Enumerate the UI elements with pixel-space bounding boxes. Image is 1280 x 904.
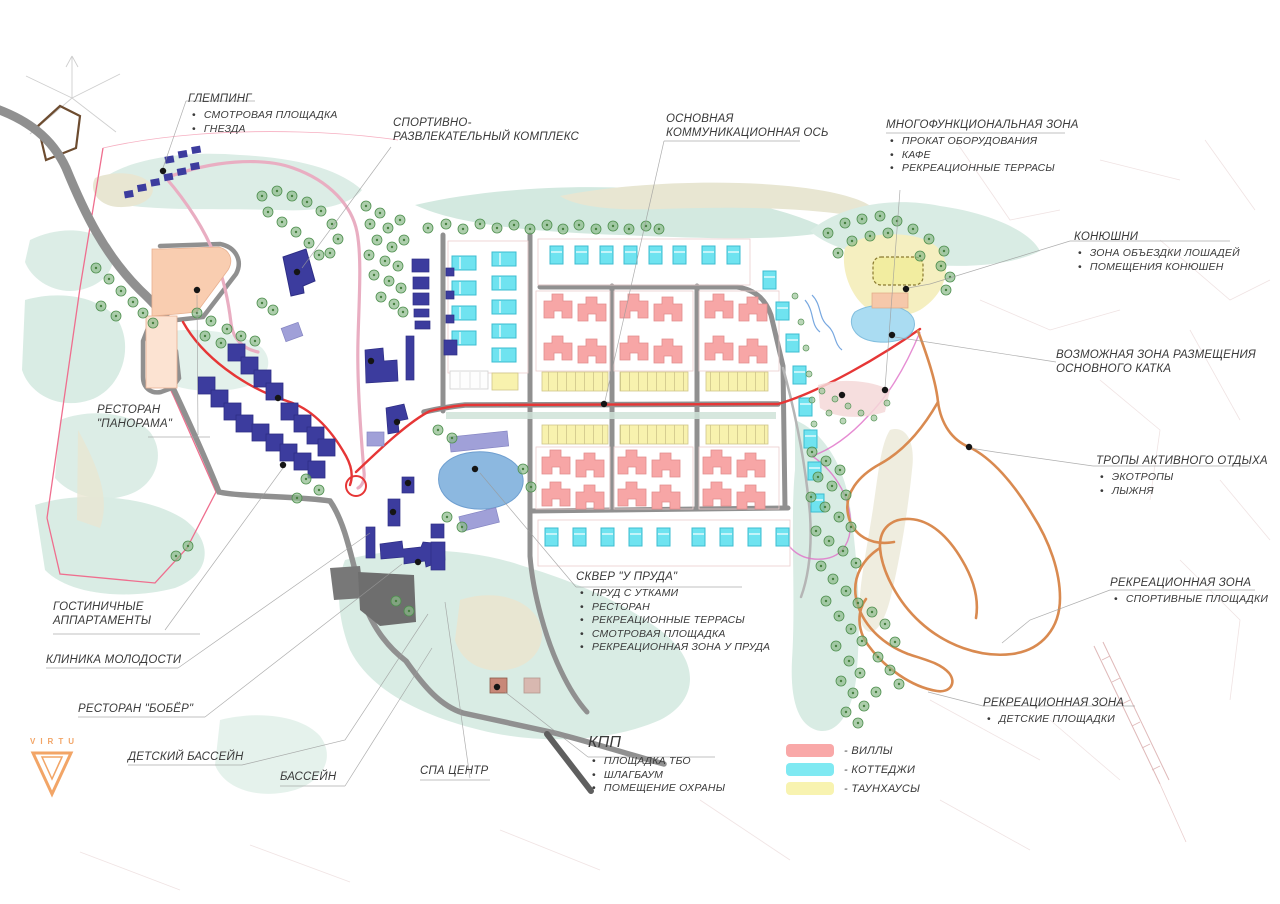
logo-mark-icon bbox=[29, 748, 75, 798]
legend-row-townhouses: - ТАУНХАУСЫ bbox=[786, 779, 920, 798]
stable-building bbox=[872, 293, 908, 308]
horse-arena bbox=[873, 257, 923, 285]
callout-sports-complex: СПОРТИВНО-РАЗВЛЕКАТЕЛЬНЫЙ КОМПЛЕКС bbox=[393, 116, 588, 147]
callout-item: РЕКРЕАЦИОННЫЕ ТЕРРАСЫ bbox=[576, 614, 770, 628]
legend-row-cottages: - КОТТЕДЖИ bbox=[786, 760, 920, 779]
callout-item: СМОТРОВАЯ ПЛОЩАДКА bbox=[188, 109, 338, 123]
callout-item: СМОТРОВАЯ ПЛОЩАДКА bbox=[576, 628, 770, 642]
callout-item: РЕСТОРАН bbox=[576, 601, 770, 615]
legend-swatch-cottages bbox=[786, 763, 836, 777]
callout-item: СПОРТИВНЫЕ ПЛОЩАДКИ bbox=[1110, 593, 1268, 607]
callout-item: ПОМЕЩЕНИЕ ОХРАНЫ bbox=[588, 782, 725, 796]
callout-trails: ТРОПЫ АКТИВНОГО ОТДЫХА ЭКОТРОПЫ ЛЫЖНЯ bbox=[1096, 454, 1268, 498]
callout-title: ГОСТИНИЧНЫЕ АППАРТАМЕНТЫ bbox=[53, 600, 203, 628]
callout-title: БАССЕЙН bbox=[280, 770, 336, 784]
legend: - ВИЛЛЫ - КОТТЕДЖИ - ТАУНХАУСЫ bbox=[786, 741, 920, 798]
callout-title: КПП bbox=[588, 734, 725, 752]
legend-row-villas: - ВИЛЛЫ bbox=[786, 741, 920, 760]
callout-stables: КОНЮШНИ ЗОНА ОБЪЕЗДКИ ЛОШАДЕЙ ПОМЕЩЕНИЯ … bbox=[1074, 230, 1240, 274]
callout-recreation-sport: РЕКРЕАЦИОННАЯ ЗОНА СПОРТИВНЫЕ ПЛОЩАДКИ bbox=[1110, 576, 1268, 607]
legend-label: - КОТТЕДЖИ bbox=[844, 764, 915, 776]
axis-green-median bbox=[446, 412, 776, 419]
callout-item: ДЕТСКИЕ ПЛОЩАДКИ bbox=[983, 713, 1124, 727]
callout-apartments: ГОСТИНИЧНЫЕ АППАРТАМЕНТЫ bbox=[53, 600, 203, 631]
callout-beaver: РЕСТОРАН "БОБЁР" bbox=[78, 702, 193, 719]
callout-title: СПА ЦЕНТР bbox=[420, 764, 488, 778]
callout-title: ВОЗМОЖНАЯ ЗОНА РАЗМЕЩЕНИЯ ОСНОВНОГО КАТК… bbox=[1056, 348, 1276, 376]
callout-title: КОНЮШНИ bbox=[1074, 230, 1240, 244]
callout-panorama: РЕСТОРАН "ПАНОРАМА" bbox=[97, 403, 217, 434]
duck-pond bbox=[439, 452, 523, 509]
callout-title: МНОГОФУНКЦИОНАЛЬНАЯ ЗОНА bbox=[886, 118, 1079, 132]
legend-label: - ТАУНХАУСЫ bbox=[844, 783, 920, 795]
callout-item: ГНЕЗДА bbox=[188, 123, 338, 137]
callout-title: СПОРТИВНО-РАЗВЛЕКАТЕЛЬНЫЙ КОМПЛЕКС bbox=[393, 116, 588, 144]
brand-name: VIRTU bbox=[26, 737, 78, 746]
compass-icon bbox=[26, 56, 120, 134]
callout-title: ДЕТСКИЙ БАССЕЙН bbox=[128, 750, 243, 764]
brand-logo: VIRTU bbox=[26, 737, 78, 803]
callout-item: РЕКРЕАЦИОННАЯ ЗОНА У ПРУДА bbox=[576, 641, 770, 655]
callout-title: РЕКРЕАЦИОННАЯ ЗОНА bbox=[983, 696, 1124, 710]
callout-title: ТРОПЫ АКТИВНОГО ОТДЫХА bbox=[1096, 454, 1268, 468]
callout-title: РЕКРЕАЦИОННАЯ ЗОНА bbox=[1110, 576, 1268, 590]
callout-title: РЕСТОРАН "БОБЁР" bbox=[78, 702, 193, 716]
callout-multizone: МНОГОФУНКЦИОНАЛЬНАЯ ЗОНА ПРОКАТ ОБОРУДОВ… bbox=[886, 118, 1079, 176]
callout-title: ГЛЕМПИНГ bbox=[188, 92, 338, 106]
callout-rink-zone: ВОЗМОЖНАЯ ЗОНА РАЗМЕЩЕНИЯ ОСНОВНОГО КАТК… bbox=[1056, 348, 1276, 379]
callout-title: РЕСТОРАН "ПАНОРАМА" bbox=[97, 403, 217, 431]
callout-glamping: ГЛЕМПИНГ СМОТРОВАЯ ПЛОЩАДКА ГНЕЗДА bbox=[188, 92, 338, 136]
callout-title: ОСНОВНАЯ КОММУНИКАЦИОННАЯ ОСЬ bbox=[666, 112, 846, 140]
callout-title: КЛИНИКА МОЛОДОСТИ bbox=[46, 653, 181, 667]
callout-item: ПОМЕЩЕНИЯ КОНЮШЕН bbox=[1074, 261, 1240, 275]
callout-item: РЕКРЕАЦИОННЫЕ ТЕРРАСЫ bbox=[886, 162, 1079, 176]
callout-pool: БАССЕЙН bbox=[280, 770, 336, 787]
callout-main-axis: ОСНОВНАЯ КОММУНИКАЦИОННАЯ ОСЬ bbox=[666, 112, 846, 143]
callout-kpp: КПП ПЛОЩАДКА ТБО ШЛАГБАУМ ПОМЕЩЕНИЕ ОХРА… bbox=[588, 734, 725, 796]
legend-swatch-townhouses bbox=[786, 782, 836, 796]
callout-item: ПРОКАТ ОБОРУДОВАНИЯ bbox=[886, 135, 1079, 149]
callout-item: ЭКОТРОПЫ bbox=[1096, 471, 1268, 485]
callout-kids-pool: ДЕТСКИЙ БАССЕЙН bbox=[128, 750, 243, 767]
callout-item: ПРУД С УТКАМИ bbox=[576, 587, 770, 601]
legend-swatch-villas bbox=[786, 744, 836, 758]
callout-title: СКВЕР "У ПРУДА" bbox=[576, 570, 770, 584]
townhouse-strips bbox=[492, 372, 768, 444]
callout-item: ЛЫЖНЯ bbox=[1096, 485, 1268, 499]
callout-recreation-kids: РЕКРЕАЦИОННАЯ ЗОНА ДЕТСКИЕ ПЛОЩАДКИ bbox=[983, 696, 1124, 727]
cadastral-road-diagonal bbox=[1094, 642, 1186, 842]
callout-item: КАФЕ bbox=[886, 149, 1079, 163]
callout-item: ЗОНА ОБЪЕЗДКИ ЛОШАДЕЙ bbox=[1074, 247, 1240, 261]
rink-pond bbox=[851, 305, 914, 342]
stream bbox=[805, 295, 842, 350]
white-townhouse-strip bbox=[450, 371, 488, 389]
callout-item: ПЛОЩАДКА ТБО bbox=[588, 755, 725, 769]
callout-item: ШЛАГБАУМ bbox=[588, 769, 725, 783]
legend-label: - ВИЛЛЫ bbox=[844, 745, 893, 757]
callout-spa: СПА ЦЕНТР bbox=[420, 764, 488, 781]
master-plan-page: ГЛЕМПИНГ СМОТРОВАЯ ПЛОЩАДКА ГНЕЗДА СПОРТ… bbox=[0, 0, 1280, 904]
callout-clinic: КЛИНИКА МОЛОДОСТИ bbox=[46, 653, 181, 670]
callout-pond-square: СКВЕР "У ПРУДА" ПРУД С УТКАМИ РЕСТОРАН Р… bbox=[576, 570, 770, 655]
